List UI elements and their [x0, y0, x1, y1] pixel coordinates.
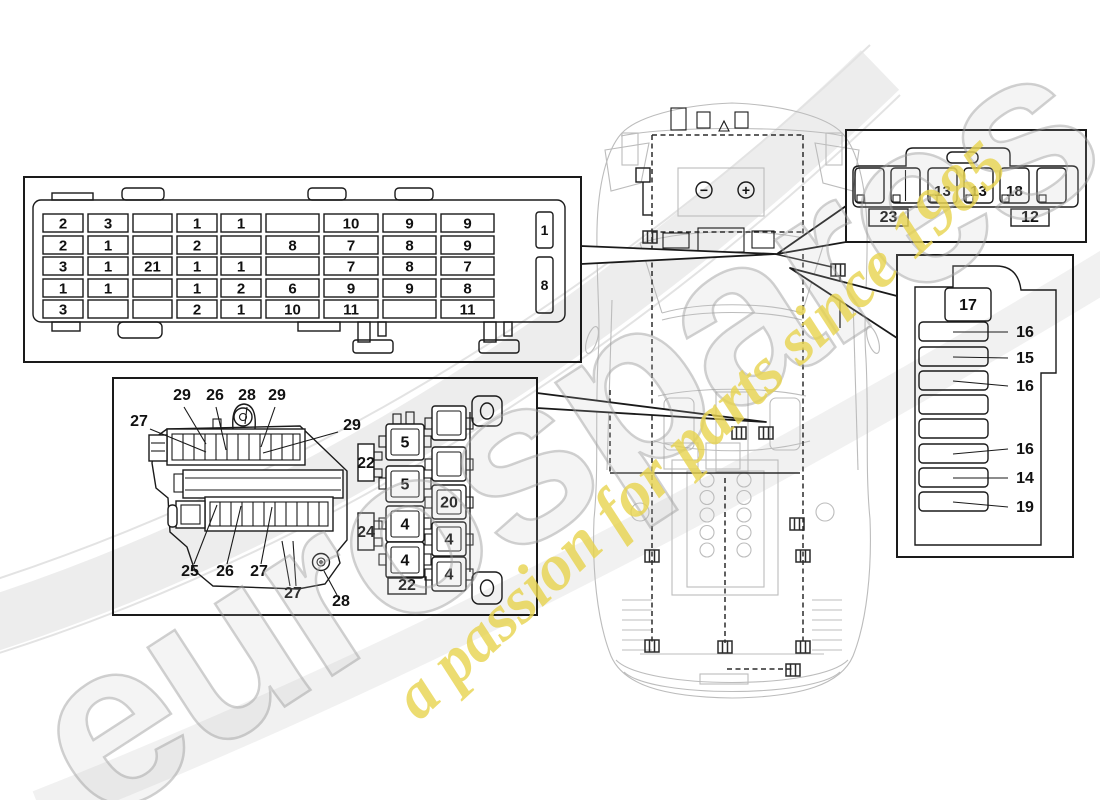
fuse-cell-label: 1	[237, 259, 245, 276]
fuse-cell: 9	[324, 279, 378, 298]
fuse-callout-label: 14	[1016, 470, 1034, 487]
fuse-cell-label: 1	[193, 259, 201, 276]
fuse-cell-label: 7	[463, 259, 471, 276]
fuse-cell: 1	[88, 236, 128, 255]
fuse-cell-label: 10	[284, 302, 301, 319]
fuse-cell-label: 9	[463, 238, 471, 255]
fuse-cell-label: 10	[343, 216, 360, 233]
part-callout: 28	[238, 387, 256, 424]
fuse-cell-label: 6	[288, 281, 296, 298]
fuse-cell: 1	[177, 279, 217, 298]
fuse-cell-label: 8	[405, 238, 413, 255]
fuse-cell: 21	[133, 257, 172, 276]
fuse-cell: 2	[177, 236, 217, 255]
fuse-cell: 10	[324, 214, 378, 233]
fuse-cell-label: 1	[237, 216, 245, 233]
fuse-cell-label: 9	[347, 281, 355, 298]
fuse-callout-label: 16	[1016, 324, 1034, 341]
fuse-cell: 2	[43, 236, 83, 255]
fuse-cell-label: 2	[237, 281, 245, 298]
fuse-cell-label: 1	[104, 259, 112, 276]
fuse-cell: 8	[383, 257, 436, 276]
fuse-cell: 3	[88, 214, 128, 233]
fuse-callout-label: 16	[1016, 441, 1034, 458]
fuse-cell: 1	[221, 300, 261, 319]
fuse-cell-label: 7	[347, 259, 355, 276]
fuse-cell: 7	[324, 257, 378, 276]
fuse-callout: 14	[953, 470, 1034, 487]
fuse-cell: 1	[43, 279, 83, 298]
fuse-cell	[221, 236, 261, 254]
fuse-cell: 9	[383, 279, 436, 298]
fuse-cell	[133, 279, 172, 297]
fuse-cell: 7	[324, 236, 378, 255]
fuse-cell: 9	[383, 214, 436, 233]
fuse-cell: 8	[383, 236, 436, 255]
fuse-cell: 2	[43, 214, 83, 233]
part-callout-label: 29	[173, 387, 191, 404]
brand-watermark: eurospares	[0, 0, 1100, 800]
fuse-cell: 10	[266, 300, 319, 319]
fuse-cell: 6	[266, 279, 319, 298]
fuse-cell	[133, 300, 172, 318]
fuse-cell-label: 1	[237, 302, 245, 319]
fuse-cell-label: 3	[59, 302, 67, 319]
fuse-cell: 1	[221, 257, 261, 276]
fuse-cell: 3	[43, 300, 83, 319]
fuse-cell: 1	[88, 279, 128, 298]
fuse-grid: 2311109921287893121117871112699832110111…	[43, 214, 494, 319]
fuse-cell: 11	[441, 300, 494, 319]
fuse-callout: 19	[953, 499, 1034, 516]
fuse-cell-label: 9	[405, 216, 413, 233]
fuse-cell-label: 1	[193, 281, 201, 298]
fuse-cell: 1	[177, 214, 217, 233]
fuse-cell-label: 9	[463, 216, 471, 233]
part-callout-label: 26	[206, 387, 224, 404]
fuse-cell	[88, 300, 128, 318]
fuse-cell	[133, 236, 172, 254]
fuse-cell-label: 9	[405, 281, 413, 298]
maxi-fuse-label: 1	[541, 222, 549, 238]
fuse-cell: 1	[177, 257, 217, 276]
fuse-callout-label: 19	[1016, 499, 1034, 516]
fuse-cell-label: 1	[59, 281, 67, 298]
fuse-cell-label: 8	[463, 281, 471, 298]
connector-icon	[796, 641, 810, 653]
connector-icon	[790, 518, 804, 530]
parts-diagram-canvas: − +	[0, 0, 1100, 800]
mounting-clip	[353, 322, 393, 353]
fuse-cell: 7	[441, 257, 494, 276]
watermark: eurospares a passion for parts since 198…	[0, 0, 1100, 800]
fuse-cell-label: 1	[193, 216, 201, 233]
fuse-cell: 9	[441, 214, 494, 233]
fuse-cell-label: 3	[59, 259, 67, 276]
connector-icon	[786, 664, 800, 676]
fuse-cell: 1	[88, 257, 128, 276]
fuse-cell-label: 21	[144, 259, 161, 276]
part-callout-label: 28	[238, 387, 256, 404]
fuse-cell: 11	[324, 300, 378, 319]
fuse-callout-label: 16	[1016, 378, 1034, 395]
fuse-cell: 1	[221, 214, 261, 233]
fuse-cell: 8	[266, 236, 319, 255]
fuse-cell	[266, 257, 319, 275]
side-fuse-slot	[919, 419, 988, 438]
fuse-cell-label: 1	[104, 281, 112, 298]
part-callout-label: 27	[130, 413, 148, 430]
fuse-cell-label: 7	[347, 238, 355, 255]
fuse-cell-label: 3	[104, 216, 112, 233]
fuse-cell	[133, 214, 172, 232]
fuse-callout: 16	[953, 378, 1034, 395]
fuse-cell-label: 8	[405, 259, 413, 276]
fuse-callout-label: 15	[1016, 350, 1034, 367]
fuse-cell	[266, 214, 319, 232]
fuse-cell-label: 8	[288, 238, 296, 255]
fuse-cell: 2	[177, 300, 217, 319]
fuse-cell	[383, 300, 436, 318]
fuse-cell: 3	[43, 257, 83, 276]
fuse-cell-label: 2	[193, 302, 201, 319]
fuse-cell: 9	[441, 236, 494, 255]
fuse-cell-label: 2	[193, 238, 201, 255]
fuse-cell: 2	[221, 279, 261, 298]
fuse-cell-label: 2	[59, 238, 67, 255]
fuse-cell-label: 2	[59, 216, 67, 233]
fuse-cell: 8	[441, 279, 494, 298]
part-callout-label: 29	[268, 387, 286, 404]
fuse-cell-label: 11	[343, 302, 359, 319]
fuse-cell-label: 11	[460, 302, 476, 319]
fuse-cell-label: 1	[104, 238, 112, 255]
